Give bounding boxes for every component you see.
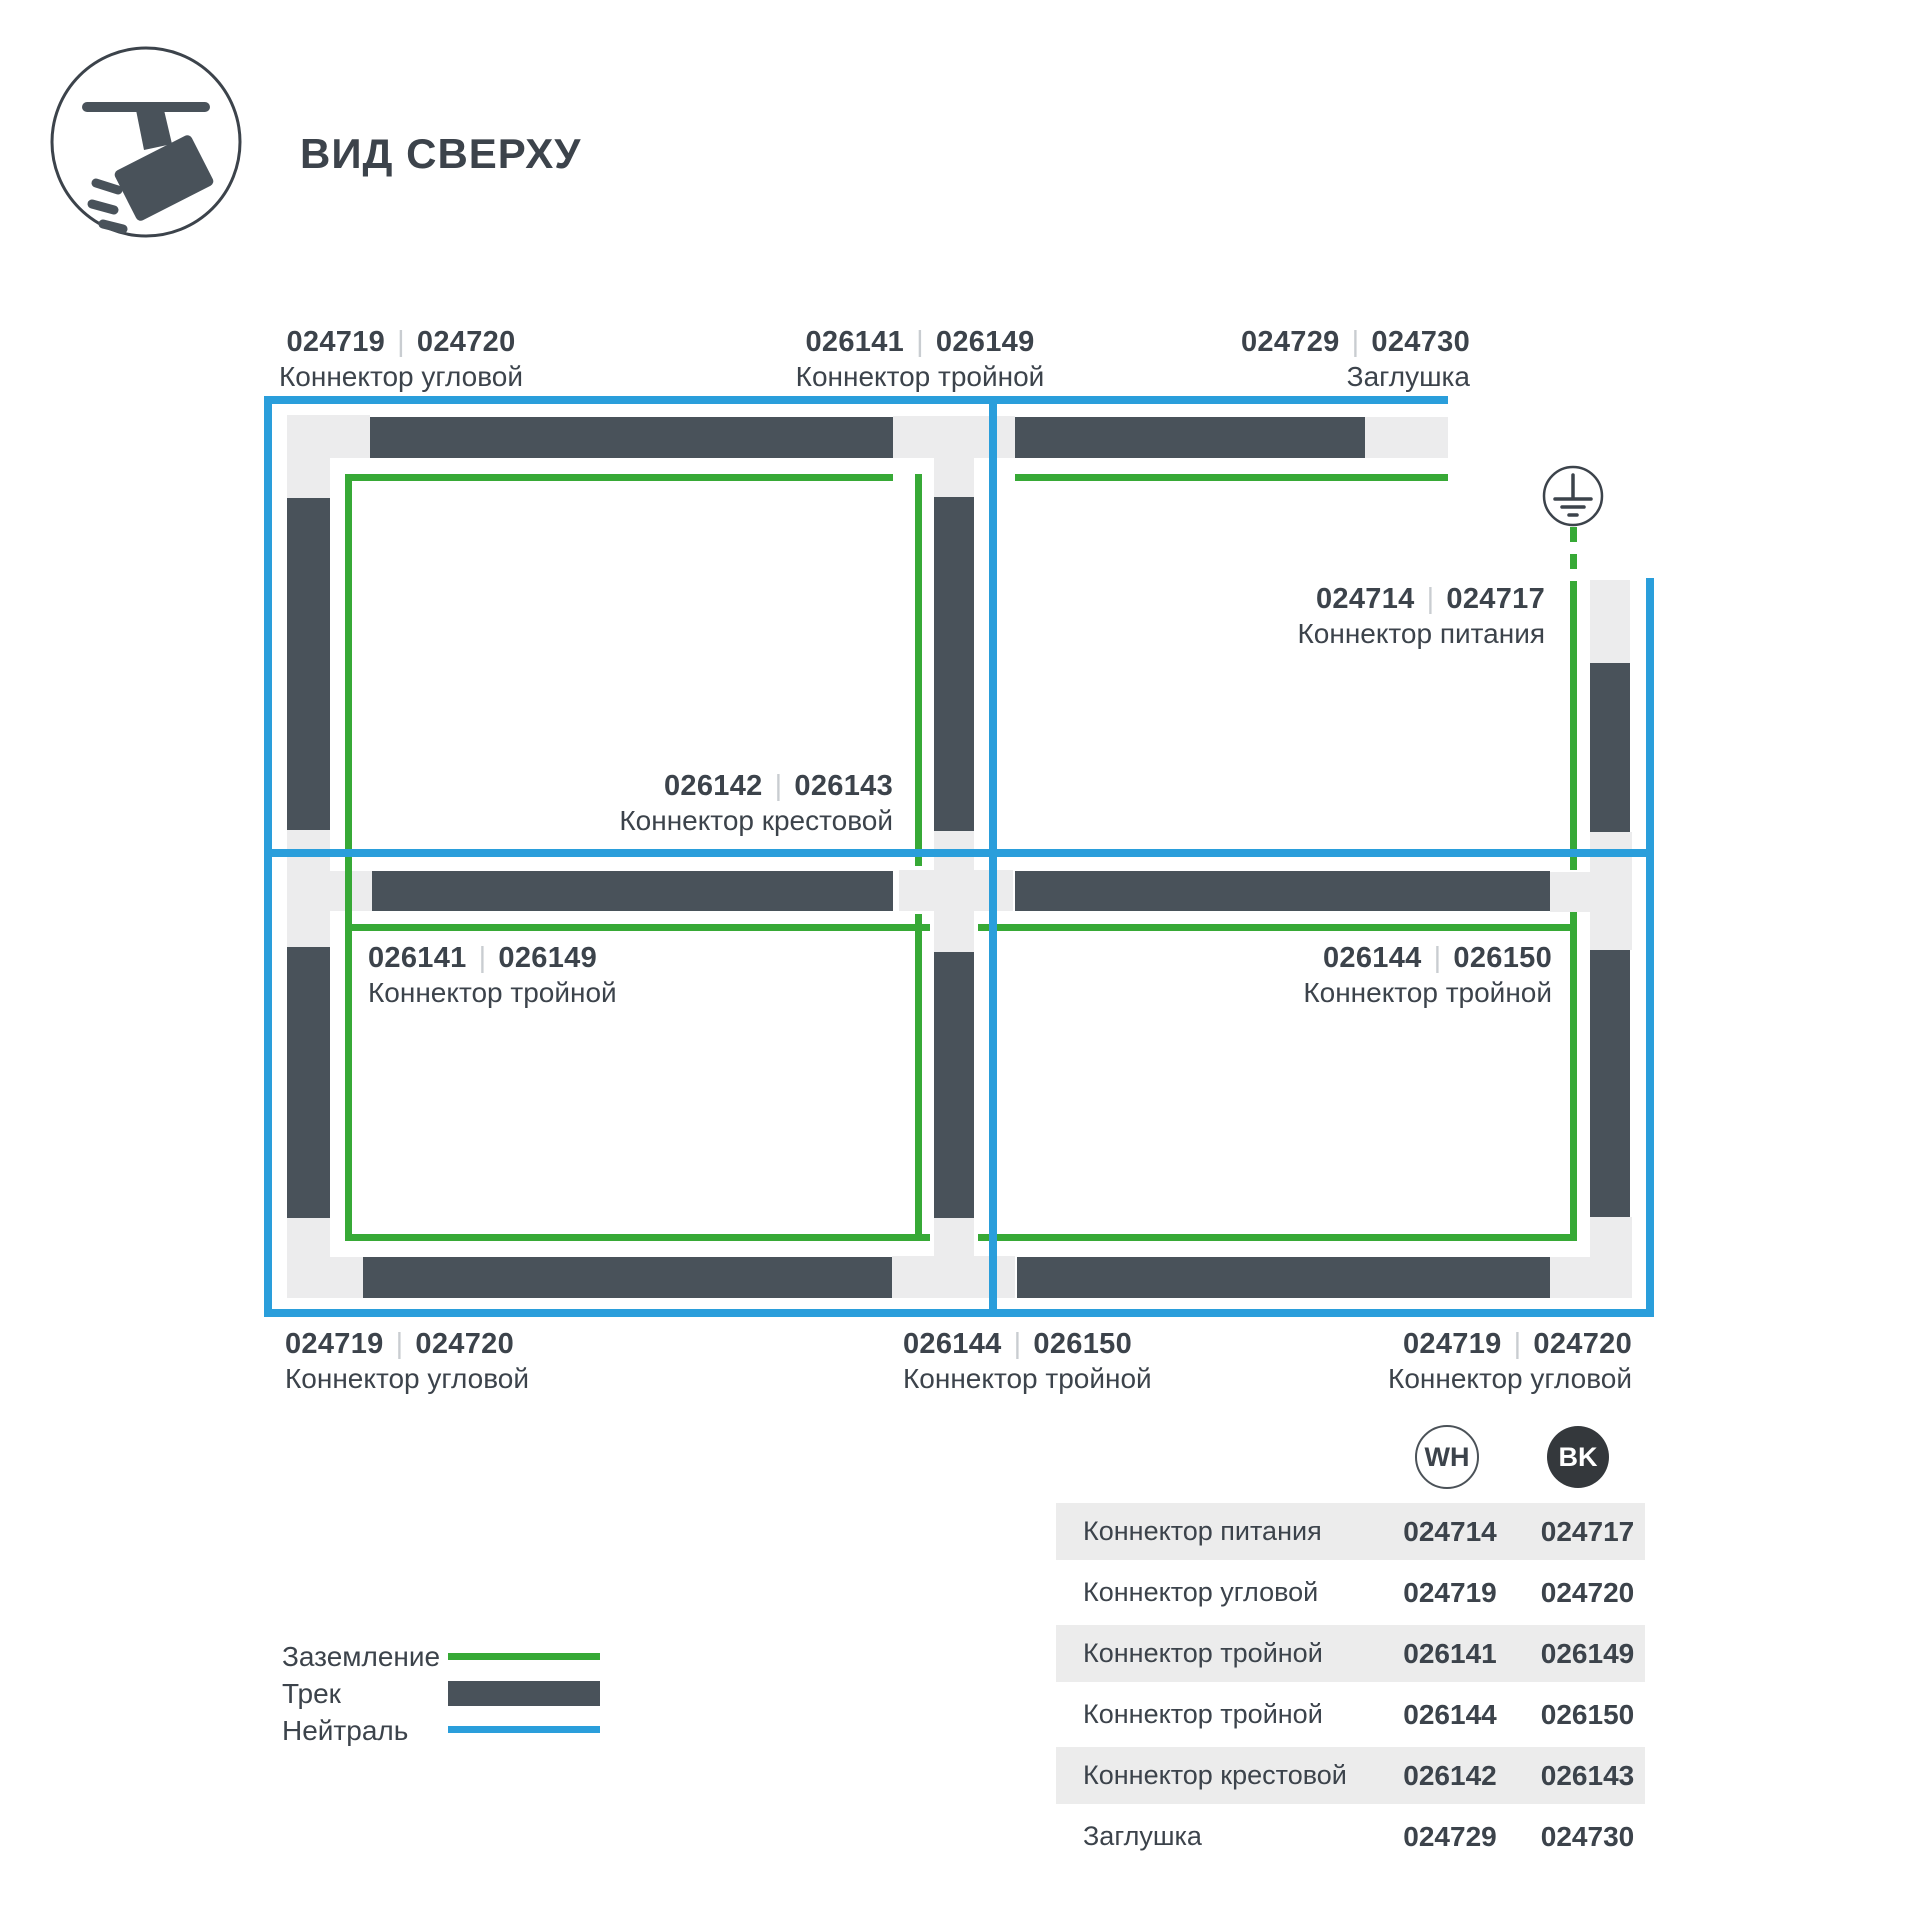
table-cell-name: Коннектор крестовой xyxy=(1056,1760,1370,1791)
legend-track-swatch xyxy=(448,1681,600,1706)
part-name: Коннектор тройной xyxy=(903,1363,1203,1394)
part-name: Коннектор угловой xyxy=(251,361,551,392)
table-cell-wh-code: 026144 xyxy=(1370,1699,1530,1731)
label-corner-connector-bottom-right: 024719|024720 Коннектор угловой xyxy=(1332,1328,1632,1394)
track-light-icon xyxy=(48,44,244,240)
part-codes: 026142|026143 xyxy=(593,770,893,802)
table-cell-wh-code: 024719 xyxy=(1370,1577,1530,1609)
label-corner-connector-top-left: 024719|024720 Коннектор угловой xyxy=(251,326,551,392)
part-codes: 024714|024717 xyxy=(1245,583,1545,615)
ground-line xyxy=(978,1234,1577,1241)
table-cell-name: Коннектор тройной xyxy=(1056,1699,1370,1730)
table-cell-bk-code: 026143 xyxy=(1530,1760,1645,1792)
triple-connector xyxy=(1550,872,1590,912)
neutral-line xyxy=(1646,578,1654,1317)
label-triple-connector-bottom: 026144|026150 Коннектор тройной xyxy=(903,1328,1203,1394)
table-row: Заглушка 024729 024730 xyxy=(1056,1808,1645,1865)
track-segment xyxy=(934,952,974,1218)
table-row: Коннектор питания 024714 024717 xyxy=(1056,1503,1645,1560)
ground-line xyxy=(348,474,893,481)
track-segment xyxy=(1590,950,1630,1217)
ground-line xyxy=(915,474,922,866)
color-badge-black: BK xyxy=(1547,1426,1609,1488)
part-name: Коннектор тройной xyxy=(368,977,668,1008)
legend-label-neutral: Нейтраль xyxy=(282,1716,408,1746)
page: { "page": { "title": "ВИД СВЕРХУ" }, "di… xyxy=(0,0,1920,1920)
part-codes: 026144|026150 xyxy=(1252,942,1552,974)
part-codes: 026141|026149 xyxy=(368,942,668,974)
legend-label-track: Трек xyxy=(282,1679,341,1709)
part-codes: 024729|024730 xyxy=(1170,326,1470,358)
label-cross-connector: 026142|026143 Коннектор крестовой xyxy=(593,770,893,836)
track-segment xyxy=(370,871,893,911)
track-segment xyxy=(287,498,330,830)
ground-line xyxy=(345,1234,930,1241)
legend-label-ground: Заземление xyxy=(282,1642,440,1672)
triple-connector xyxy=(934,1218,974,1256)
part-codes: 026141|026149 xyxy=(770,326,1070,358)
track-segment xyxy=(287,947,330,1218)
legend-neutral-swatch xyxy=(448,1726,600,1733)
track-segment xyxy=(1015,417,1365,458)
power-connector xyxy=(1590,580,1630,663)
table-cell-bk-code: 026149 xyxy=(1530,1638,1645,1670)
corner-connector xyxy=(287,1257,363,1298)
part-name: Коннектор угловой xyxy=(285,1363,585,1394)
track-segment xyxy=(1015,871,1550,911)
triple-connector xyxy=(287,830,330,947)
table-row: Коннектор тройной 026141 026149 xyxy=(1056,1625,1645,1682)
table-cell-bk-code: 024717 xyxy=(1530,1516,1645,1548)
part-name: Коннектор угловой xyxy=(1332,1363,1632,1394)
part-name: Коннектор питания xyxy=(1245,618,1545,649)
ground-line xyxy=(345,474,352,1241)
part-codes: 024719|024720 xyxy=(1332,1328,1632,1360)
table-cell-wh-code: 026141 xyxy=(1370,1638,1530,1670)
track-segment xyxy=(1590,663,1630,832)
ground-dashed-line xyxy=(1570,527,1577,585)
neutral-line xyxy=(264,1309,1654,1317)
part-name: Коннектор тройной xyxy=(1252,977,1552,1008)
part-codes: 024719|024720 xyxy=(251,326,551,358)
legend-ground-swatch xyxy=(448,1653,600,1660)
part-name: Коннектор тройной xyxy=(770,361,1070,392)
track-segment xyxy=(370,417,893,458)
track-segment xyxy=(363,1257,892,1298)
table-row: Коннектор тройной 026144 026150 xyxy=(1056,1686,1645,1743)
part-codes: 026144|026150 xyxy=(903,1328,1203,1360)
ground-symbol-icon xyxy=(1541,464,1605,528)
table-row: Коннектор крестовой 026142 026143 xyxy=(1056,1747,1645,1804)
table-cell-name: Коннектор питания xyxy=(1056,1516,1370,1547)
table-cell-name: Коннектор тройной xyxy=(1056,1638,1370,1669)
label-endcap-top: 024729|024730 Заглушка xyxy=(1170,326,1470,392)
ground-line xyxy=(978,924,1577,931)
color-badge-white: WH xyxy=(1415,1425,1479,1489)
table-cell-wh-code: 026142 xyxy=(1370,1760,1530,1792)
track-segment xyxy=(934,497,974,831)
part-codes: 024719|024720 xyxy=(285,1328,585,1360)
neutral-line xyxy=(264,849,1654,857)
table-cell-bk-code: 026150 xyxy=(1530,1699,1645,1731)
table-cell-name: Заглушка xyxy=(1056,1821,1370,1852)
table-cell-bk-code: 024720 xyxy=(1530,1577,1645,1609)
neutral-line xyxy=(264,396,1448,404)
ground-line xyxy=(345,924,930,931)
ground-line xyxy=(1570,585,1577,870)
table-cell-name: Коннектор угловой xyxy=(1056,1577,1370,1608)
triple-connector xyxy=(934,458,974,497)
neutral-line xyxy=(989,396,997,1317)
ground-line xyxy=(915,914,922,1241)
ground-line xyxy=(1570,912,1577,1241)
label-corner-connector-bottom-left: 024719|024720 Коннектор угловой xyxy=(285,1328,585,1394)
label-triple-connector-top: 026141|026149 Коннектор тройной xyxy=(770,326,1070,392)
label-power-connector: 024714|024717 Коннектор питания xyxy=(1245,583,1545,649)
part-name: Коннектор крестовой xyxy=(593,805,893,836)
part-name: Заглушка xyxy=(1170,361,1470,392)
table-cell-bk-code: 024730 xyxy=(1530,1821,1645,1853)
endcap xyxy=(1365,417,1448,458)
corner-connector xyxy=(287,415,330,498)
page-title: ВИД СВЕРХУ xyxy=(300,130,581,178)
ground-line xyxy=(1015,474,1448,481)
label-triple-connector-left: 026141|026149 Коннектор тройной xyxy=(368,942,668,1008)
table-cell-wh-code: 024714 xyxy=(1370,1516,1530,1548)
corner-connector xyxy=(1550,1257,1632,1298)
table-cell-wh-code: 024729 xyxy=(1370,1821,1530,1853)
label-triple-connector-right: 026144|026150 Коннектор тройной xyxy=(1252,942,1552,1008)
table-row: Коннектор угловой 024719 024720 xyxy=(1056,1564,1645,1621)
track-segment xyxy=(1017,1257,1550,1298)
